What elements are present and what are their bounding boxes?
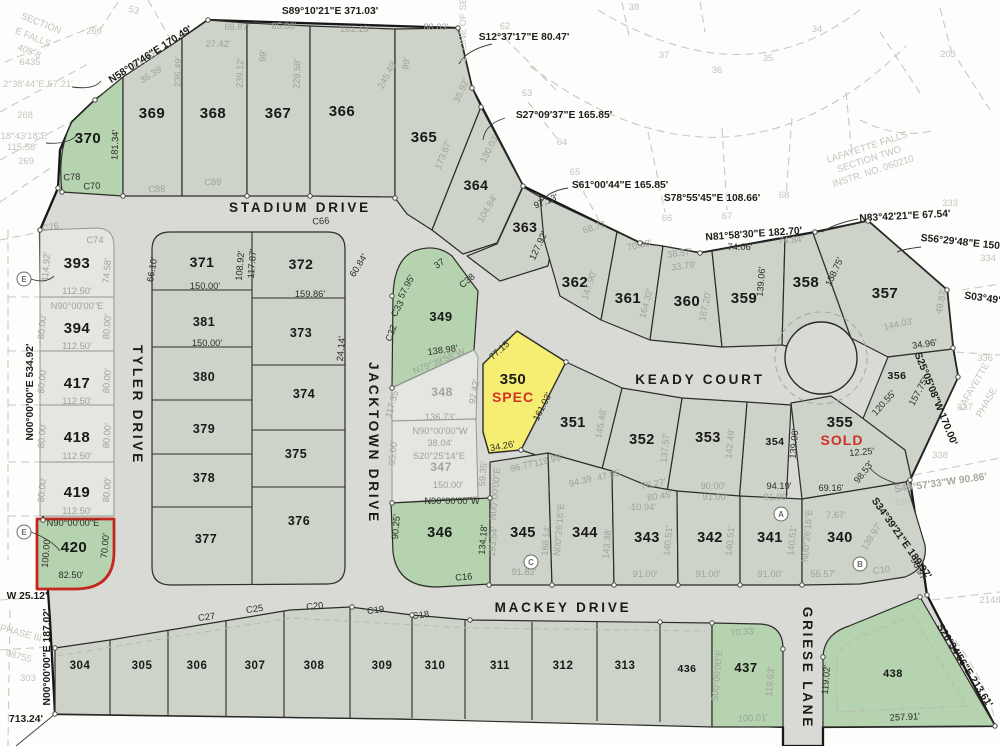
background-parcel-label: 18°43'18"E (0, 131, 47, 142)
survey-point (519, 448, 523, 452)
leader-line (72, 81, 101, 88)
survey-point (738, 583, 742, 587)
background-parcel-label: PHASE (974, 386, 1000, 419)
dimension-label: 55.57' (810, 569, 835, 579)
dimension-label: 90.00' (700, 481, 725, 491)
lot-number: 312 (553, 660, 574, 672)
lot-number: 364 (464, 177, 489, 193)
survey-point (638, 241, 642, 245)
street-name-label: JACKTOWN DRIVE (366, 362, 381, 524)
street-name-label: KEADY COURT (635, 372, 765, 387)
survey-point (410, 613, 414, 617)
background-parcel-label: 269 (18, 156, 34, 167)
lot-number: 349 (429, 309, 452, 324)
dimension-label: 85.00' (271, 21, 296, 31)
survey-point (56, 186, 60, 190)
background-parcel-label: 334 (980, 253, 996, 264)
survey-point (710, 621, 714, 625)
lot-number: 417 (64, 375, 91, 392)
survey-point (121, 194, 125, 198)
background-parcel-label: 333 (942, 198, 958, 209)
survey-point (479, 105, 483, 109)
survey-point (698, 251, 702, 255)
dimension-label: C89 (204, 177, 222, 188)
dimension-label: 229.58' (291, 58, 302, 89)
lot-number: 343 (634, 530, 660, 546)
bearing-label: W 25.12' (7, 591, 48, 602)
survey-point (781, 647, 785, 651)
dimension-label: 100.01' (737, 712, 768, 724)
survey-point (245, 194, 249, 198)
background-parcel-line (700, 2, 705, 32)
survey-point (390, 294, 394, 298)
bearing-label: S89°10'21"E 371.03' (282, 6, 378, 17)
lot-number: 393 (64, 255, 91, 272)
dimension-label: 88.03' (423, 22, 448, 32)
background-parcel-label: 2°38'44"E 57.21' (3, 79, 73, 90)
background-parcel-line (0, 167, 52, 202)
lot-number: 308 (304, 660, 325, 672)
circled-marker-letter: C (528, 558, 534, 567)
lot-number: 371 (190, 254, 215, 270)
dimension-label: 239.12' (234, 57, 245, 88)
dimension-label: 66.87' (224, 22, 249, 32)
dimension-label: 94.19' (766, 481, 791, 491)
lot-status-label: SOLD (821, 432, 864, 448)
dimension-label: 27.42' (205, 39, 230, 49)
dimension-label: 112.50' (62, 341, 92, 351)
dimension-label: 38.04' (427, 438, 452, 448)
dimension-label: S20°25'14"E (413, 451, 465, 461)
lot-number: 306 (187, 660, 208, 672)
survey-point (456, 26, 460, 30)
lot-number: 374 (293, 387, 315, 401)
bearing-label: S78°55'45"E 108.66' (664, 193, 760, 204)
dimension-label: 181.34' (109, 129, 120, 160)
lot-number: 359 (731, 290, 758, 307)
lot-number: 352 (629, 432, 655, 448)
street-name-label: MACKEY DRIVE (495, 600, 632, 615)
dimension-label: C66 (312, 216, 330, 227)
dimension-label: C20 (306, 600, 324, 611)
lot-block-371-381 (152, 232, 345, 585)
dimension-label: 236.49' (172, 56, 183, 87)
lot-number: 340 (827, 530, 853, 546)
dimension-label: C74 (86, 235, 103, 245)
lot-number: 361 (615, 290, 642, 307)
circled-marker-letter: E (21, 528, 27, 537)
lot-number: 346 (427, 525, 453, 541)
bearing-label: S27°09'37"E 165.85' (516, 110, 612, 121)
lot-number: 418 (64, 429, 91, 446)
background-parcel-label: 2148 (979, 595, 1000, 606)
dimension-label: 150.00' (192, 338, 222, 348)
background-parcel-line (598, 8, 862, 55)
lot-number: 309 (372, 660, 393, 672)
survey-point (564, 360, 568, 364)
circled-marker-letter: A (778, 510, 784, 519)
lot-number: 366 (329, 103, 356, 120)
background-parcel-line (530, 46, 906, 137)
plat-map-page: 3703693683673663653643633623613603593583… (0, 0, 1000, 746)
dimension-label: 150.00' (190, 281, 220, 291)
survey-point (956, 375, 960, 379)
bearing-label: S03°49' (964, 291, 1000, 307)
dimension-label: 91.00' (757, 569, 782, 579)
survey-point (390, 386, 394, 390)
dimension-label: 181.13' (340, 24, 370, 34)
background-parcel-label: 336 (977, 353, 993, 364)
background-parcel-label: PHASE III (0, 623, 43, 645)
lot-number: 379 (193, 422, 215, 436)
lot-number: 357 (872, 285, 899, 302)
background-parcel-line (528, 102, 560, 142)
background-parcel-label: E. LINE OF SEC. (458, 0, 469, 62)
lot-number: 350 (500, 371, 527, 388)
street-name-label: TYLER DRIVE (130, 345, 145, 465)
survey-point (612, 583, 616, 587)
dimension-label: 99' (258, 49, 268, 62)
lot-number: 363 (513, 219, 538, 235)
lot-number: 372 (289, 256, 314, 272)
survey-point (658, 620, 662, 624)
background-parcel-label: 53 (127, 4, 140, 17)
background-parcel-line (786, 118, 792, 196)
background-parcel-label: 338 (932, 450, 948, 461)
lot-number: 355 (827, 414, 854, 431)
bearing-label: 713.24' (9, 714, 43, 725)
lot-number: 341 (757, 530, 783, 546)
street-name-label: STADIUM DRIVE (229, 200, 371, 215)
lot-number: 377 (195, 532, 217, 546)
lot-number: 376 (288, 514, 310, 528)
lot-number: 365 (411, 129, 438, 146)
survey-point (41, 518, 45, 522)
lot-number: 356 (887, 370, 906, 382)
survey-point (676, 583, 680, 587)
lot-number: 307 (245, 660, 266, 672)
dimension-label: 91.00' (763, 492, 788, 502)
lot-number: 367 (265, 105, 292, 122)
lot-number: 375 (285, 447, 307, 461)
background-parcel-line (914, 458, 1000, 475)
dimension-label: 112.50' (62, 451, 92, 461)
background-parcel-line (962, 284, 1000, 290)
lot-number: 368 (200, 105, 227, 122)
bearing-label: N00°00'00"E 187.02' (42, 609, 53, 706)
survey-point (908, 478, 912, 482)
survey-point (945, 288, 949, 292)
bearing-label: N83°42'21"E 67.54' (859, 209, 951, 225)
bearing-label: S12°37'17"E 80.47' (479, 32, 570, 43)
lot-parcel (391, 498, 490, 587)
dimension-label: N90°00'00"E (47, 518, 100, 528)
lot-number: 380 (193, 370, 215, 384)
background-parcel-line (648, 132, 665, 212)
background-parcel-label: 268 (17, 110, 33, 121)
survey-point (53, 712, 57, 716)
background-parcel-line (940, 8, 952, 54)
lot-number: 304 (70, 660, 91, 672)
background-parcel-label: 115.58' (7, 142, 37, 153)
dimension-label: 91.00' (632, 569, 657, 579)
lot-number: 354 (765, 436, 784, 448)
lot-number: 344 (572, 525, 598, 541)
dimension-label: 257.91' (889, 711, 920, 723)
lot-number: 378 (193, 471, 215, 485)
dimension-label: C78 (63, 172, 81, 183)
dimension-label: N90°00'00"W (424, 496, 480, 506)
survey-point (993, 724, 997, 728)
dimension-label: 91.00' (695, 569, 720, 579)
background-parcel-label: 203 (940, 49, 956, 60)
dimension-label: C16 (455, 571, 473, 582)
bearing-label: N00°00'00"E 534.92' (25, 344, 36, 441)
lot-number: 345 (510, 525, 536, 541)
background-parcel-label: 6435 (19, 57, 40, 68)
dimension-label: 112.50' (62, 506, 92, 516)
dimension-label: 69.16' (818, 483, 843, 493)
survey-point (521, 184, 525, 188)
survey-point (308, 194, 312, 198)
circled-marker-letter: B (857, 560, 863, 569)
lot-number: 369 (139, 105, 166, 122)
dimension-label: 112.50' (62, 396, 92, 406)
lot-number: 373 (290, 326, 312, 340)
background-parcel-label: 34 (812, 24, 823, 35)
survey-point (38, 228, 42, 232)
dimension-label: N90°00'00"W (412, 426, 468, 436)
background-parcel-label: 36 (712, 65, 723, 76)
background-parcel-label: 339 (894, 497, 910, 508)
lot-number: 370 (75, 130, 102, 147)
survey-point (866, 219, 870, 223)
dimension-label: 7.67' (826, 510, 846, 520)
background-parcel-label: 303 (20, 673, 36, 684)
survey-point (350, 605, 354, 609)
background-parcel-label: 38 (629, 2, 640, 13)
lot-number: 420 (61, 539, 88, 556)
lot-number: 436 (677, 663, 696, 675)
dimension-label: 82.50' (58, 570, 83, 580)
keady-court-cul-de-sac (785, 322, 857, 394)
lot-number: 381 (193, 315, 215, 329)
dimension-label: 74.06' (727, 242, 752, 252)
background-parcel-label: 35 (763, 53, 774, 64)
survey-point (800, 583, 804, 587)
survey-point (488, 496, 492, 500)
lot-status-label: SPEC (492, 389, 534, 405)
lot-number: 419 (64, 484, 91, 501)
lot-number: 311 (490, 660, 510, 672)
dimension-label: 91.00' (702, 492, 727, 502)
lot-number: 437 (734, 660, 757, 675)
survey-point (390, 501, 394, 505)
dimension-label: 99' (400, 56, 412, 70)
background-parcel-line (505, 38, 558, 92)
dimension-label: 150.00' (433, 480, 463, 490)
street-name-label: GRIESE LANE (800, 607, 815, 729)
dimension-label: N90°00'00"E (51, 301, 104, 311)
lot-number: 360 (674, 293, 701, 310)
survey-point (821, 655, 825, 659)
dimension-label: C88 (148, 184, 166, 195)
survey-point (393, 196, 397, 200)
dimension-label: 136.73' (425, 412, 455, 422)
survey-point (925, 593, 929, 597)
background-parcel-line (0, 232, 40, 240)
lot-number: 342 (697, 530, 723, 546)
circled-marker-letter: E (21, 275, 27, 284)
background-parcel-label: 64 (557, 137, 568, 148)
survey-point (53, 646, 57, 650)
lot-number: 351 (560, 415, 586, 431)
dimension-label: 159.86' (295, 289, 325, 299)
lot-number: 394 (64, 320, 91, 337)
background-parcel-label: 62 (500, 21, 511, 32)
lot-number: 353 (695, 430, 721, 446)
plat-map: 3703693683673663653643633623613603593583… (0, 0, 1000, 746)
survey-point (918, 595, 922, 599)
lot-number: 348 (431, 385, 453, 399)
survey-point (550, 583, 554, 587)
survey-point (93, 98, 97, 102)
survey-point (470, 86, 474, 90)
survey-point (813, 230, 817, 234)
background-parcel-line (958, 60, 990, 110)
lot-number: 347 (430, 460, 452, 474)
background-parcel-label: 37 (659, 50, 670, 61)
background-parcel-label: 63 (522, 88, 533, 99)
background-parcel-label: 67 (722, 211, 733, 222)
survey-point (468, 618, 472, 622)
background-parcel-label: 68 (779, 190, 790, 201)
background-parcel-label: 65 (570, 167, 581, 178)
dimension-label: -10.94' (628, 502, 656, 512)
lot-number: 358 (793, 274, 820, 291)
dimension-label: 112.50' (62, 286, 92, 296)
lot-number: 313 (615, 660, 636, 672)
dimension-label: C70 (83, 181, 101, 192)
background-parcel-label: 66 (662, 213, 673, 224)
survey-point (206, 18, 210, 22)
survey-point (951, 346, 955, 350)
background-parcel-label: 266 (86, 26, 102, 37)
bearing-label: S61°00'44"E 165.85' (572, 180, 668, 191)
lot-number: 310 (425, 660, 446, 672)
bearing-label: S56°29'48"E 150 (920, 233, 1000, 252)
survey-point (487, 583, 491, 587)
lot-number: 438 (883, 668, 903, 680)
lot-number: 305 (132, 660, 153, 672)
survey-point (60, 190, 64, 194)
